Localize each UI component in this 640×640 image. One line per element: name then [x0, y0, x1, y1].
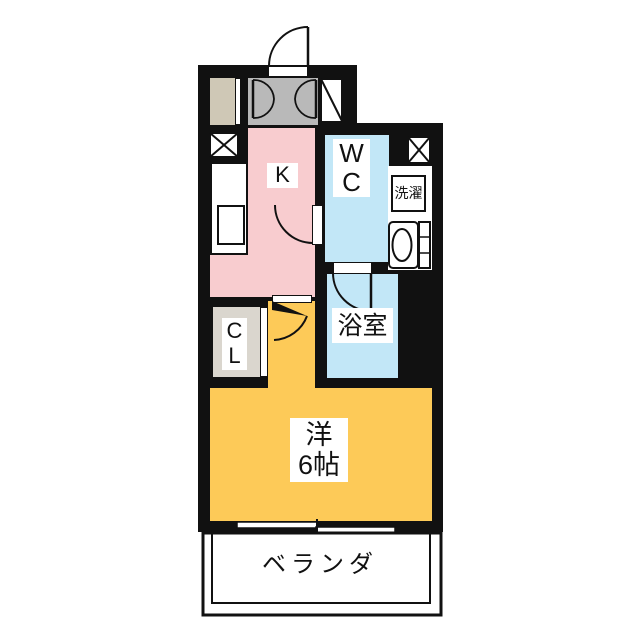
floor-plan: 洗濯: [0, 0, 640, 640]
bathroom-label: 浴室: [332, 308, 393, 343]
entrance-hall: [248, 78, 318, 125]
western-room-corridor: [268, 301, 315, 388]
toilet-room-label-line2: C: [342, 168, 361, 197]
toilet-room-label-line1: W: [339, 139, 364, 168]
kitchen-label: K: [267, 163, 298, 188]
bathroom-door-opening: [333, 262, 372, 274]
entrance-storage-box: [320, 78, 343, 123]
balcony-label-text: ベランダ: [262, 552, 378, 579]
shoe-cabinet-door: [235, 78, 241, 125]
western-room-label-line1: 洋: [306, 420, 333, 450]
kitchen-floor: [248, 128, 315, 297]
entrance-door-icon: [269, 27, 308, 66]
bathroom-label-text: 浴室: [337, 312, 387, 340]
western-room-label-line2: 6帖: [298, 450, 340, 480]
kitchen-label-text: K: [275, 163, 290, 188]
western-room-label: 洋 6帖: [290, 418, 348, 482]
toilet-room-label: W C: [333, 139, 370, 197]
washing-machine-label: 洗濯: [395, 186, 423, 202]
washing-machine: 洗濯: [391, 175, 426, 212]
closet-label: C L: [222, 318, 247, 370]
shoe-cabinet: [210, 78, 235, 125]
balcony-label: ベランダ: [245, 551, 395, 579]
kitchen-floor-lower: [210, 255, 248, 297]
closet-door: [260, 307, 268, 377]
closet-label-line2: L: [228, 344, 240, 369]
entrance-door-threshold: [267, 65, 309, 78]
kitchen-sink: [217, 205, 245, 245]
room-door-opening: [272, 295, 312, 303]
kitchen-door-opening: [312, 205, 323, 245]
closet-label-line1: C: [227, 319, 243, 344]
